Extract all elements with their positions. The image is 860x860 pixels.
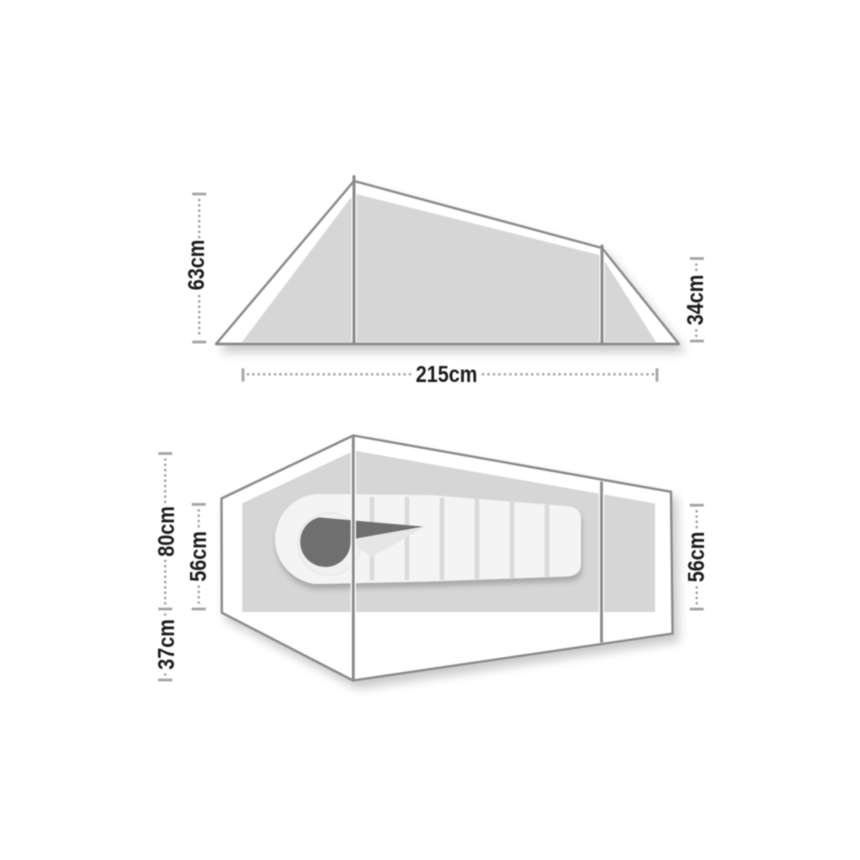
- svg-text:80cm: 80cm: [154, 506, 180, 557]
- svg-text:215cm: 215cm: [416, 362, 478, 388]
- svg-text:34cm: 34cm: [683, 275, 709, 326]
- svg-text:56cm: 56cm: [684, 532, 710, 583]
- svg-text:63cm: 63cm: [184, 240, 210, 291]
- svg-text:37cm: 37cm: [154, 619, 180, 670]
- svg-text:56cm: 56cm: [186, 531, 212, 582]
